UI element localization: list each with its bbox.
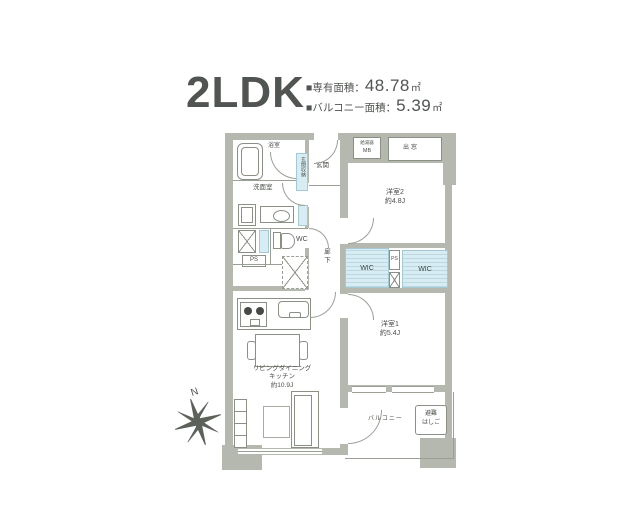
- room2-name: 洋室2: [362, 188, 428, 197]
- wall-left: [225, 133, 233, 455]
- room2-door-arc: [348, 218, 374, 244]
- meter-box-label: MB: [354, 148, 380, 155]
- fridge-space: [282, 256, 308, 289]
- bay-window-label: 出窓: [403, 145, 419, 153]
- ps-center-box: PS: [389, 250, 400, 270]
- line-wc-west: [270, 228, 271, 264]
- entrance-storage-label: 玄関収納: [300, 157, 305, 177]
- ldk-label: リビングダイニング キッチン 約10.9J: [240, 365, 324, 390]
- washroom-storage: [298, 205, 308, 226]
- wc-door-arc: [309, 228, 329, 248]
- ldk-label-line2: キッチン: [240, 373, 324, 381]
- exclusive-area-label: ■専有面積：: [306, 80, 365, 95]
- washroom-label: 洗面室: [253, 184, 273, 192]
- toilet-bowl: [281, 233, 295, 249]
- vanity-counter: [260, 206, 294, 223]
- kitchen-counter: [237, 298, 311, 330]
- area-specs: ■専有面積： 48.78 ㎡ ■バルコニー面積： 5.39 ㎡: [306, 76, 442, 116]
- bathtub: [237, 143, 263, 180]
- balcony-edge-bottom: [345, 458, 454, 459]
- entrance-door-arc: [314, 140, 338, 164]
- escape-ladder-box: 避難 はしご: [415, 405, 447, 435]
- stove: [240, 302, 267, 327]
- escape-ladder-line2: はしご: [416, 420, 446, 428]
- dining-table: [255, 334, 300, 367]
- entrance-step-line: [309, 185, 340, 186]
- washer-pan-inner: [241, 207, 253, 223]
- wic-right-box: WIC: [402, 250, 448, 288]
- floorplan-page: 2LDK ■専有面積： 48.78 ㎡ ■バルコニー面積： 5.39 ㎡ N: [0, 0, 640, 530]
- water-heater-box: 給湯器 MB: [353, 137, 381, 159]
- compass-north-label: N: [190, 386, 200, 399]
- balcony-area-unit: ㎡: [432, 99, 442, 114]
- bay-window: 出窓: [388, 137, 442, 161]
- low-table: [263, 406, 290, 438]
- exclusive-area-line: ■専有面積： 48.78 ㎡: [306, 76, 442, 96]
- exclusive-area-value: 48.78: [365, 76, 410, 96]
- tv-board: [234, 399, 247, 448]
- wall-right-corner: [443, 133, 456, 185]
- kitchen-faucet: [289, 312, 301, 318]
- hallway-label: 廊下: [322, 248, 329, 265]
- closet-strip: [259, 230, 269, 253]
- bathtub-inner: [241, 147, 259, 176]
- room1-door-arc: [348, 294, 374, 320]
- layout-type-title: 2LDK: [186, 68, 305, 118]
- stove-burner-2: [256, 307, 264, 315]
- window-room1-balcony-2: [392, 386, 434, 393]
- room1-size: 約5.4J: [365, 329, 415, 338]
- exclusive-area-unit: ㎡: [411, 79, 421, 94]
- opening-entrance-door: [314, 133, 338, 140]
- dining-chair-right: [299, 341, 308, 360]
- balcony-area-value: 5.39: [396, 96, 431, 116]
- room2-size: 約4.8J: [362, 197, 428, 206]
- wall-wic-room1: [345, 288, 448, 293]
- bathroom-label: 浴室: [268, 143, 280, 151]
- balcony-area-line: ■バルコニー面積： 5.39 ㎡: [306, 96, 442, 116]
- water-heater-label: 給湯器: [354, 140, 380, 146]
- room1-label: 洋室1 約5.4J: [365, 320, 415, 338]
- bathroom-door-arc: [270, 152, 297, 179]
- wic-left-box: WIC: [345, 248, 389, 288]
- room1-name: 洋室1: [365, 320, 415, 329]
- balcony-area-label: ■バルコニー面積：: [306, 100, 396, 115]
- wic-right-label: WIC: [403, 265, 447, 274]
- dining-chair-left: [247, 341, 256, 360]
- escape-ladder-line1: 避難: [416, 411, 446, 419]
- opening-balcony-door: [340, 408, 348, 444]
- floorplan: 給湯器 MB 出窓 浴室 玄関収納 玄関 洗面室: [222, 128, 460, 470]
- washroom-door-arc: [282, 183, 305, 206]
- stove-burner-1: [244, 307, 252, 315]
- vanity-sink: [273, 210, 290, 222]
- ps-center-label: PS: [390, 256, 399, 263]
- wc-label: WC: [296, 235, 308, 244]
- wic-left-label: WIC: [346, 264, 388, 273]
- sofa-seat: [294, 395, 312, 446]
- opening-room1-door: [340, 294, 348, 318]
- wall-right: [445, 183, 452, 440]
- kitchen-sink: [278, 301, 309, 318]
- ps-center-shaft: [389, 272, 400, 288]
- balcony-label: バルコニー: [368, 416, 403, 424]
- stove-grill: [250, 319, 260, 326]
- ldk-size: 約10.9J: [240, 382, 324, 390]
- ps-left-box: PS: [242, 255, 266, 267]
- sofa: [291, 391, 319, 448]
- compass-rose: N: [166, 386, 230, 450]
- shaft-box: [238, 230, 256, 253]
- toilet-tank: [273, 232, 281, 249]
- washer-space: [238, 204, 256, 226]
- pillar-bottom-right: [420, 438, 456, 468]
- window-room1-balcony-1: [352, 386, 386, 393]
- window-ldk-south: [238, 449, 322, 454]
- ldk-door-arc: [310, 292, 336, 318]
- opening-room2-door: [340, 218, 348, 244]
- room2-label: 洋室2 約4.8J: [362, 188, 428, 206]
- balcony-edge-right: [453, 392, 454, 459]
